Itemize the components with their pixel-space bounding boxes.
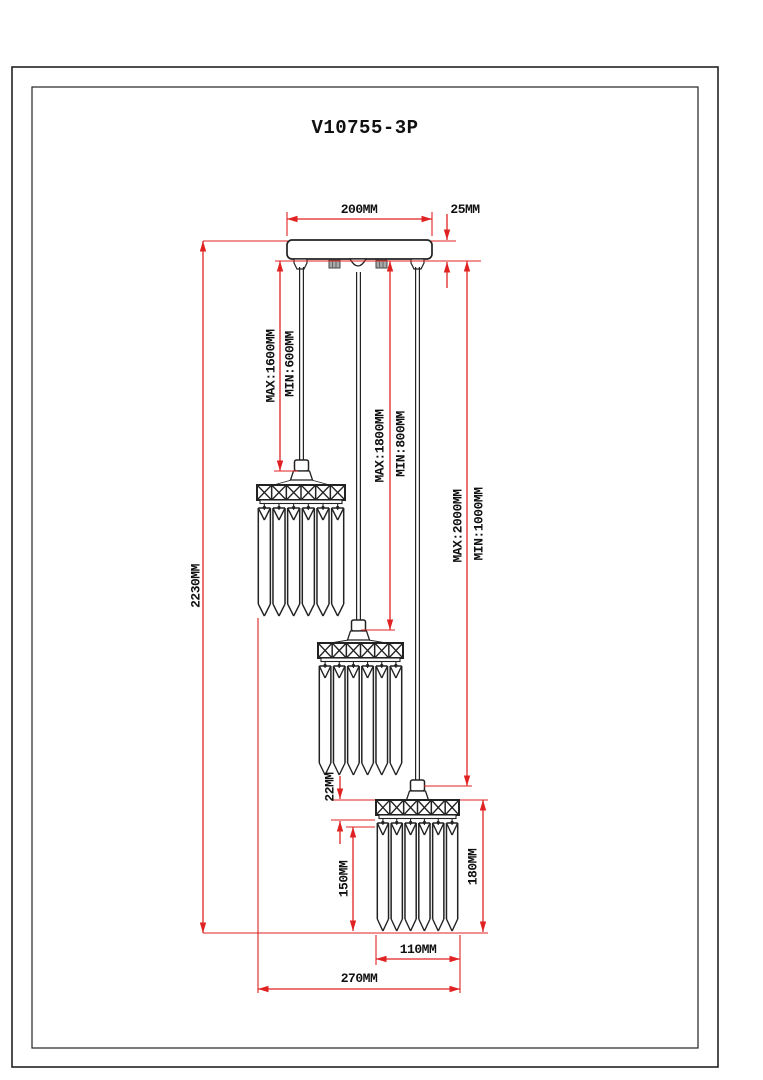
cord1-max-label: MAX:1600MM: [264, 329, 279, 403]
fixture-width-label: 270MM: [341, 971, 378, 986]
cord3-min-label: MIN:1000MM: [472, 487, 487, 561]
pendant-shade-1: [257, 460, 345, 616]
inner-border: [32, 87, 698, 1048]
dim-cord1-drop: MAX:1600MM MIN:600MM: [264, 261, 299, 471]
shade-crystal-height-label: 150MM: [337, 860, 352, 897]
technical-drawing: V10755-3P: [0, 0, 763, 1080]
drawing-page: V10755-3P: [0, 0, 763, 1080]
shade-band-height-label: 22MM: [323, 772, 338, 802]
canopy-plate: [287, 240, 432, 259]
model-number: V10755-3P: [311, 117, 418, 139]
dim-cord3-drop: MAX:2000MM MIN:1000MM: [424, 261, 487, 786]
drawing-border: [12, 67, 718, 1067]
cord-1: [300, 267, 304, 461]
cord1-min-label: MIN:600MM: [283, 330, 298, 396]
ceiling-canopy: [287, 240, 432, 269]
cord2-min-label: MIN:800MM: [394, 410, 409, 476]
canopy-thickness-label: 25MM: [450, 202, 480, 217]
cord-2: [357, 272, 361, 621]
dim-shade-total-height: 180MM: [460, 800, 488, 932]
dim-cord2-drop: MAX:1800MM MIN:800MM: [361, 261, 409, 630]
dim-canopy-width: 200MM: [287, 202, 432, 236]
outer-border: [12, 67, 718, 1067]
dim-shade-width: 110MM: [376, 935, 460, 993]
cord-3: [416, 267, 420, 781]
center-dome: [350, 259, 366, 266]
cord3-max-label: MAX:2000MM: [451, 489, 466, 563]
shade-width-label: 110MM: [400, 942, 437, 957]
dim-total-height: 2230MM: [189, 241, 204, 933]
dim-shade-band-height: 22MM: [323, 772, 376, 844]
pendant-shade-3: [376, 780, 459, 931]
dim-shade-crystal-height: 150MM: [337, 827, 376, 931]
pendant-shade-2: [318, 620, 403, 775]
canopy-width-label: 200MM: [341, 202, 378, 217]
total-height-label: 2230MM: [189, 563, 204, 608]
shade-total-height-label: 180MM: [466, 848, 481, 885]
cord2-max-label: MAX:1800MM: [373, 409, 388, 483]
